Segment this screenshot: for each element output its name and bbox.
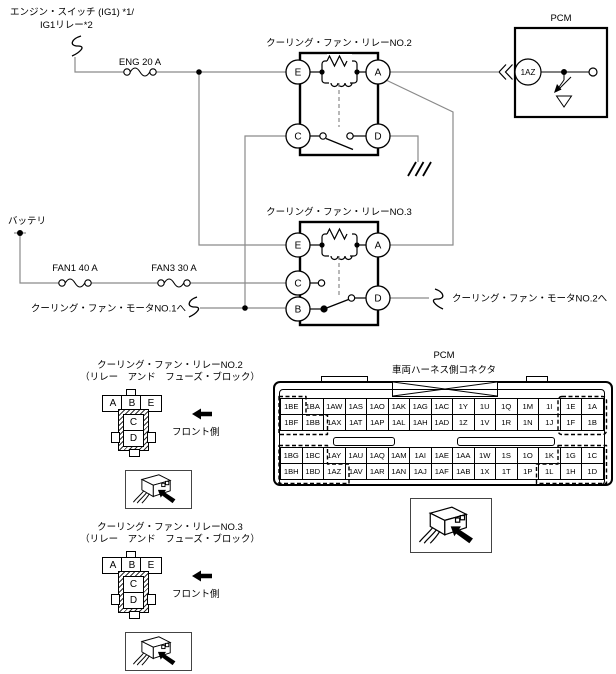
pcm-pin-1AO: 1AO xyxy=(366,398,389,415)
relay2-terminal-c: C xyxy=(294,132,301,143)
pcm-box: 1AZ PCM xyxy=(499,13,607,117)
pcm-pin-1AM: 1AM xyxy=(388,447,411,464)
pcm-pin-1AG: 1AG xyxy=(409,398,432,415)
connector-subtitle: （リレー アンド フューズ・ブロック） xyxy=(60,369,280,383)
relay3-switch xyxy=(310,280,366,312)
connector-subtitle: （リレー アンド フューズ・ブロック） xyxy=(60,531,280,545)
pcm-pin-1AH: 1AH xyxy=(409,414,432,431)
relay3-terminal-b: B xyxy=(295,305,302,316)
relay3-title: クーリング・ファン・リレーNO.3 xyxy=(266,206,412,218)
pcm-pin-1AU: 1AU xyxy=(345,447,368,464)
pcm-pin-1BG: 1BG xyxy=(280,447,303,464)
pcm-pin-1AW: 1AW xyxy=(323,398,346,415)
transistor-symbol xyxy=(554,75,571,94)
pcm-pin-1S: 1S xyxy=(495,447,518,464)
pcm-pin-1G: 1G xyxy=(560,447,583,464)
pcm-box-title: PCM xyxy=(550,13,571,24)
pcm-pin-1AF: 1AF xyxy=(431,463,454,480)
pcm-pin-1Y: 1Y xyxy=(452,398,475,415)
pcm-pin-1AV: 1AV xyxy=(345,463,368,480)
pcm-connector-diagram: PCM 車両ハーネス側コネクタ 1BE1BA1AW1AS1AO1AK1AG1AC… xyxy=(272,348,616,574)
connector-side-tab xyxy=(147,594,156,605)
connector-view-illustration xyxy=(410,498,492,553)
pcm-pin-1AN: 1AN xyxy=(388,463,411,480)
pcm-connector-subtitle: 車両ハーネス側コネクタ xyxy=(272,362,616,376)
pcm-pin-1BC: 1BC xyxy=(302,447,325,464)
relay2-title: クーリング・ファン・リレーNO.2 xyxy=(266,37,412,49)
pcm-pin-1AQ: 1AQ xyxy=(366,447,389,464)
relay2-terminal-e: E xyxy=(295,68,302,79)
pcm-pin-1AJ: 1AJ xyxy=(409,463,432,480)
pcm-row: 1BF1BB1AX1AT1AP1AL1AH1AD1Z1V1R1N1J1F1B xyxy=(281,415,604,431)
relay2-connector-diagram: クーリング・ファン・リレーNO.2 （リレー アンド フューズ・ブロック） A … xyxy=(60,352,280,510)
engine-switch-label: エンジン・スイッチ (IG1) *1/ xyxy=(10,7,134,18)
pcm-pin-1BA: 1BA xyxy=(302,398,325,415)
pcm-pin-1AT: 1AT xyxy=(345,414,368,431)
pcm-pin-1AB: 1AB xyxy=(452,463,475,480)
pcm-pin-1N: 1N xyxy=(517,414,540,431)
fuse-eng-label: ENG 20 A xyxy=(119,57,162,68)
fuse-eng-symbol xyxy=(124,68,156,76)
pcm-pin-1AY: 1AY xyxy=(323,447,346,464)
pcm-pin-1BB: 1BB xyxy=(302,414,325,431)
front-direction-arrow-icon xyxy=(192,570,212,582)
pcm-pin-1J: 1J xyxy=(538,414,561,431)
pcm-connector-title: PCM xyxy=(272,350,616,361)
relay2-terminal-d: D xyxy=(374,132,381,143)
pcm-pin-1AP: 1AP xyxy=(366,414,389,431)
pin-cell-d: D xyxy=(123,592,144,609)
pcm-row: 1BG1BC1AY1AU1AQ1AM1AI1AE1AA1W1S1O1K1G1C xyxy=(281,448,604,464)
pcm-pin-1V: 1V xyxy=(474,414,497,431)
wiring-diagram-page: E A C D xyxy=(0,0,616,674)
pcm-pin-1C: 1C xyxy=(581,447,604,464)
pcm-pin-1Z: 1Z xyxy=(452,414,475,431)
pcm-pin-1K: 1K xyxy=(538,447,561,464)
pcm-pin-1AL: 1AL xyxy=(388,414,411,431)
pcm-pin-1Q: 1Q xyxy=(495,398,518,415)
pin-cell-c: C xyxy=(123,576,144,593)
connector-sketch-icon xyxy=(126,633,188,667)
front-side-label: フロント側 xyxy=(172,424,220,438)
pcm-pin-1AE: 1AE xyxy=(431,447,454,464)
pcm-row: 1BH1BD1AZ1AV1AR1AN1AJ1AF1AB1X1T1P1L1H1D xyxy=(281,464,604,480)
front-direction-arrow-icon xyxy=(192,408,212,420)
front-side-label: フロント側 xyxy=(172,586,220,600)
pcm-pin-1BH: 1BH xyxy=(280,463,303,480)
pcm-pin-1X: 1X xyxy=(474,463,497,480)
pcm-pin-1AI: 1AI xyxy=(409,447,432,464)
connector-side-tab xyxy=(111,432,120,443)
fuse-fan3-label: FAN3 30 A xyxy=(151,263,197,274)
pcm-pin-1A: 1A xyxy=(581,398,604,415)
wire-break-motor2 xyxy=(433,289,443,309)
fuse-fan1-label: FAN1 40 A xyxy=(52,263,98,274)
ground-triangle-symbol xyxy=(557,96,572,107)
pcm-pin-1AA: 1AA xyxy=(452,447,475,464)
pcm-pin-1U: 1U xyxy=(474,398,497,415)
pcm-pin-1O: 1O xyxy=(517,447,540,464)
pin-cell-d: D xyxy=(123,430,144,447)
connector-sketch-icon xyxy=(126,471,188,505)
fuse-fan3-symbol xyxy=(158,279,190,287)
pcm-pin-1AX: 1AX xyxy=(323,414,346,431)
pcm-pin-grid-top: 1BE1BA1AW1AS1AO1AK1AG1AC1Y1U1Q1M1I1E1A 1… xyxy=(281,399,604,431)
pcm-pin-1L: 1L xyxy=(538,463,561,480)
junction-dots xyxy=(17,69,248,311)
pcm-pin-1P: 1P xyxy=(517,463,540,480)
relay2: E A C D xyxy=(286,53,390,155)
relay2-switch xyxy=(310,133,366,150)
pcm-pin-1T: 1T xyxy=(495,463,518,480)
connector-side-tab xyxy=(147,432,156,443)
pcm-pin-1M: 1M xyxy=(517,398,540,415)
battery-label: バッテリ xyxy=(8,216,46,227)
schematic: E A C D xyxy=(0,0,616,350)
connector-sketch-icon xyxy=(411,499,488,549)
wire-break-motor1 xyxy=(189,297,199,317)
pcm-pin-1H: 1H xyxy=(560,463,583,480)
relay2-coil xyxy=(310,54,366,89)
housing-slot xyxy=(333,437,395,446)
pcm-terminal-label: 1AZ xyxy=(521,68,536,77)
pcm-pin-1I: 1I xyxy=(538,398,561,415)
pcm-pin-1W: 1W xyxy=(474,447,497,464)
ig1-relay-label: IG1リレー*2 xyxy=(40,20,93,31)
pcm-pin-1B: 1B xyxy=(581,414,604,431)
housing-slot xyxy=(457,437,555,446)
pcm-pin-1AD: 1AD xyxy=(431,414,454,431)
chevron-left-icon xyxy=(499,65,513,80)
wire-break-engine-switch xyxy=(72,36,82,56)
ground-symbol xyxy=(408,162,431,176)
pcm-pin-1BF: 1BF xyxy=(280,414,303,431)
relay3-terminal-a: A xyxy=(375,241,382,252)
relay3-terminal-d: D xyxy=(374,294,381,305)
pcm-pin-1AK: 1AK xyxy=(388,398,411,415)
pcm-pin-1D: 1D xyxy=(581,463,604,480)
relay3: E A C B D xyxy=(286,222,390,325)
pcm-pin-1AS: 1AS xyxy=(345,398,368,415)
pcm-internal xyxy=(541,68,597,107)
pcm-pin-1AZ: 1AZ xyxy=(323,463,346,480)
fuse-fan1-symbol xyxy=(59,279,91,287)
pin-cell-c: C xyxy=(123,414,144,431)
relay3-terminal-c: C xyxy=(294,279,301,290)
to-motor1-label: クーリング・ファン・モータNO.1へ xyxy=(31,303,187,315)
relay3-terminal-e: E xyxy=(295,241,302,252)
pcm-pin-1AR: 1AR xyxy=(366,463,389,480)
pcm-pin-1R: 1R xyxy=(495,414,518,431)
connector-view-illustration xyxy=(125,632,192,671)
connector-view-illustration xyxy=(125,470,192,509)
connector-side-tab xyxy=(111,594,120,605)
pcm-pin-1F: 1F xyxy=(560,414,583,431)
pcm-pin-1E: 1E xyxy=(560,398,583,415)
pcm-row: 1BE1BA1AW1AS1AO1AK1AG1AC1Y1U1Q1M1I1E1A xyxy=(281,399,604,415)
relay3-coil xyxy=(310,227,366,262)
relay3-connector-diagram: クーリング・ファン・リレーNO.3 （リレー アンド フューズ・ブロック） A … xyxy=(60,514,280,672)
pcm-pin-grid-bottom: 1BG1BC1AY1AU1AQ1AM1AI1AE1AA1W1S1O1K1G1C … xyxy=(281,448,604,480)
pcm-pin-1AC: 1AC xyxy=(431,398,454,415)
pcm-pin-1BD: 1BD xyxy=(302,463,325,480)
pcm-pin-1BE: 1BE xyxy=(280,398,303,415)
to-motor2-label: クーリング・ファン・モータNO.2へ xyxy=(452,293,608,305)
connector-bottom-tab xyxy=(129,449,140,457)
relay2-terminal-a: A xyxy=(375,68,382,79)
connector-bottom-tab xyxy=(129,611,140,619)
